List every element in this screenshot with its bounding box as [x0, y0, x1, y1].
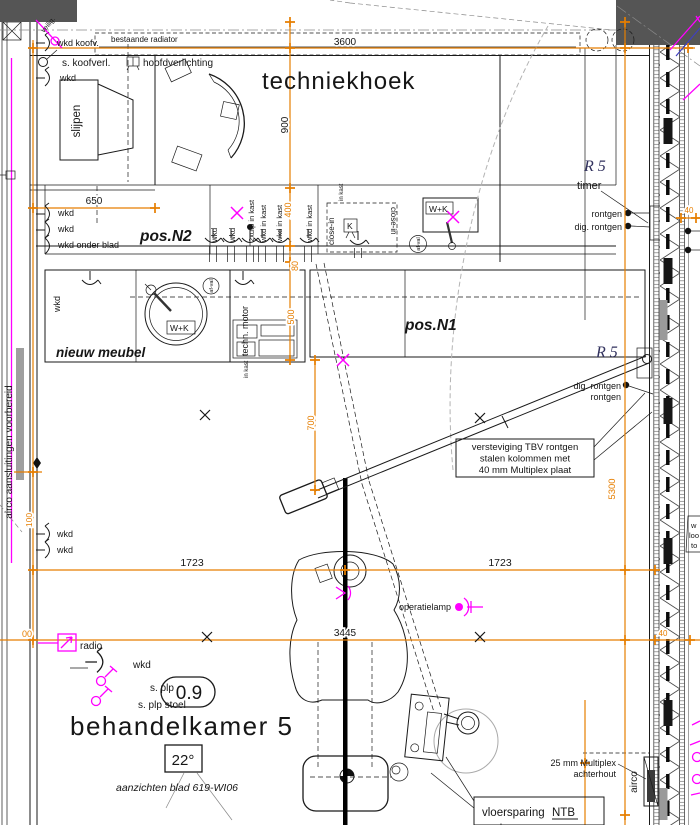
label-wk-unit-sink: W+K: [170, 323, 189, 333]
label-techn-motor-kast: in kast: [244, 360, 250, 378]
label-rot-wkd-kast-1: wkd in kast: [259, 204, 268, 243]
label-wkd-top: wkd: [59, 73, 76, 83]
radio-icon: [38, 634, 76, 651]
label-rot-wkd-2: wkd: [228, 228, 237, 243]
delivery-unit: [405, 694, 449, 761]
label-rot-wkd-1: wkd: [210, 228, 219, 243]
magenta-point-marker: [337, 354, 349, 366]
label-wkd-sink: wkd: [52, 296, 62, 313]
stool-top-view: [165, 59, 244, 171]
label-close-in-rev: close-in: [389, 207, 398, 235]
floor-plan-drawing: veilig. wkd koofv. bestaande radiator s.…: [0, 0, 700, 825]
magenta-point-marker: [231, 207, 243, 219]
note-versteviging-3: 40 mm Multiplex plaat: [479, 465, 572, 476]
dim-1723-left: 1723: [180, 557, 204, 569]
electrical-symbols: [36, 16, 700, 795]
dimension-texts: 3600 900 650 400 80 500 700 1723 1723 34…: [22, 37, 694, 639]
label-rot-wkd-kast-3: wkd in kast: [305, 204, 314, 243]
dim-500: 500: [286, 309, 296, 324]
section-cut-line: [343, 478, 348, 825]
dim-650: 650: [86, 196, 103, 207]
right-wall: [650, 45, 700, 825]
label-timer: timer: [577, 180, 602, 192]
floor-recess-circle: [434, 709, 498, 773]
dim-3445: 3445: [334, 628, 357, 639]
sheet-note: aanzichten blad 619-WI06: [116, 782, 238, 794]
label-close-in-kast: in kast: [339, 183, 345, 201]
label-wk-unit-top: W+K: [429, 204, 448, 214]
label-r5-xray: R 5: [595, 344, 618, 361]
label-techn-motor: techn. motor: [240, 306, 250, 356]
label-techniekhoek: techniekhoek: [262, 68, 415, 95]
wall-block-topleft: [0, 0, 77, 22]
dim-5300: 5300: [607, 478, 618, 499]
label-wkd-bottom: wkd: [132, 660, 151, 671]
s-plp-stoel-icon: [92, 686, 113, 706]
dim-900: 900: [280, 116, 291, 133]
note-versteviging-1: versteviging TBV rontgen: [472, 442, 579, 453]
label-wkd-650-2: wkd: [57, 224, 74, 234]
label-wkd-mid-1: wkd: [56, 529, 73, 539]
point-marker: [200, 410, 210, 420]
label-s-koofverl: s. koofverl.: [62, 58, 110, 69]
note-multiplex-1: 25 mm Multiplex: [550, 758, 616, 768]
label-hoofdverlichting: hoofdverlichting: [143, 58, 213, 69]
wall-fill: [16, 348, 24, 480]
label-airco-wall: airco: [629, 771, 640, 793]
dim-700: 700: [306, 415, 316, 430]
right-edge-symbols: [690, 721, 700, 795]
dim-00: 00: [22, 629, 32, 639]
hoofdverlichting-icon: [127, 57, 139, 70]
label-operatielamp: operatielamp: [399, 602, 451, 612]
sink: [145, 283, 207, 345]
label-pos-n1: pos.N1: [404, 317, 457, 334]
dim-40-bottom: 40: [659, 629, 668, 638]
label-s-plp: s. plp: [150, 683, 174, 694]
xray-arm: [279, 348, 652, 515]
label-rot-2xutp: 2xutp in kast: [247, 199, 256, 242]
wkd-socket-icon: [82, 271, 101, 285]
label-afval-top: af-val: [416, 237, 422, 250]
xray-tube-head: [279, 474, 340, 514]
note-airco-prep: airco aansluitingen voorbereid: [4, 385, 15, 518]
dim-80: 80: [290, 261, 300, 271]
edge-label-3: to: [691, 541, 697, 550]
point-marker: [475, 413, 485, 423]
label-wkd-mid-2: wkd: [56, 545, 73, 555]
label-r5-timer: R 5: [583, 158, 606, 175]
label-rontgen-2: rontgen: [590, 392, 621, 402]
room-number: 0.9: [176, 683, 202, 704]
label-dig-rontgen-1: dig. rontgen: [574, 222, 622, 232]
edge-label-2: loo: [689, 531, 699, 540]
dim-arrow: [33, 457, 41, 469]
edge-label-1: w: [690, 521, 697, 530]
dim-100: 100: [24, 513, 34, 527]
wkd-socket-icon: [235, 271, 254, 285]
room-temperature: 22°: [172, 752, 195, 769]
label-k-unit: K: [347, 221, 353, 231]
label-slijpen: slijpen: [71, 105, 83, 138]
label-rontgen-1: rontgen: [591, 209, 622, 219]
label-wkd-650-1: wkd: [57, 208, 74, 218]
note-ntb: NTB: [552, 807, 575, 819]
xray-swing-arc: [450, 26, 548, 470]
room-name: behandelkamer 5: [70, 711, 293, 741]
dim-3600: 3600: [334, 37, 357, 48]
dim-1723-right: 1723: [488, 557, 512, 569]
label-dig-rontgen-2: dig. rontgen: [573, 381, 621, 391]
label-close-in: close-in: [327, 217, 336, 245]
label-radio: radio: [80, 641, 103, 652]
note-versteviging-2: stalen kolommen met: [480, 454, 571, 465]
close-in-unit: [327, 203, 397, 252]
dimension-lines: [0, 17, 700, 825]
label-nieuw-meubel: nieuw meubel: [56, 345, 146, 360]
label-afval-sink: af-val: [209, 279, 215, 292]
label-pos-n2: pos.N2: [139, 228, 192, 245]
pos-n1-cabinet: [310, 270, 645, 357]
dim-40-top: 40: [685, 206, 694, 215]
headrest: [334, 555, 366, 587]
label-wkd-onder-blad: wkd onder blad: [57, 240, 119, 250]
note-vloersparing: vloersparing: [482, 807, 545, 819]
dental-chair: [290, 263, 479, 825]
note-multiplex-2: achterhout: [573, 769, 616, 779]
dim-400: 400: [283, 202, 293, 217]
label-wkd-koofv: wkd koofv.: [56, 38, 99, 48]
label-bestaande-radiator: bestaande radiator: [111, 35, 178, 44]
unit-wheel: [457, 712, 479, 734]
operatielamp-icon: [455, 598, 483, 616]
text-labels: veilig. wkd koofv. bestaande radiator s.…: [4, 16, 699, 825]
